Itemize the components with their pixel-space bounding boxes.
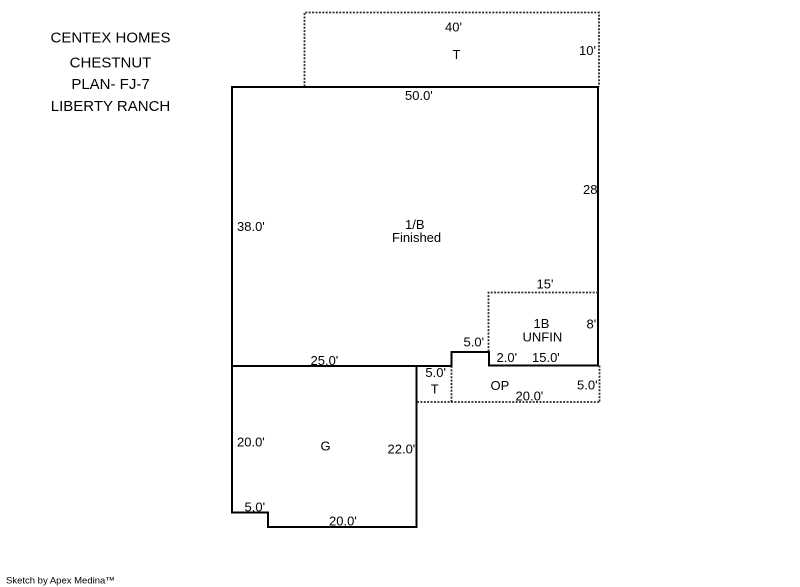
svg-text:CHESTNUT: CHESTNUT xyxy=(70,55,152,72)
svg-text:8': 8' xyxy=(587,317,597,332)
svg-text:5.0': 5.0' xyxy=(577,378,598,393)
svg-text:5.0': 5.0' xyxy=(464,335,485,350)
svg-text:28: 28 xyxy=(583,182,597,197)
svg-text:25.0': 25.0' xyxy=(311,353,339,368)
svg-text:10': 10' xyxy=(579,43,596,58)
svg-text:T: T xyxy=(431,382,439,397)
svg-text:OP: OP xyxy=(491,378,510,393)
svg-text:T: T xyxy=(453,47,461,62)
svg-text:50.0': 50.0' xyxy=(405,88,433,103)
svg-text:40': 40' xyxy=(445,20,462,35)
svg-text:CENTEX HOMES: CENTEX HOMES xyxy=(50,30,170,47)
svg-text:2.0': 2.0' xyxy=(497,350,518,365)
svg-text:22.0': 22.0' xyxy=(388,442,416,457)
svg-text:5.0': 5.0' xyxy=(245,500,266,515)
svg-text:LIBERTY RANCH: LIBERTY RANCH xyxy=(51,98,170,115)
svg-text:20.0': 20.0' xyxy=(237,434,265,449)
svg-text:PLAN- FJ-7: PLAN- FJ-7 xyxy=(71,76,149,93)
svg-text:5.0': 5.0' xyxy=(425,365,446,380)
svg-text:G: G xyxy=(321,439,331,454)
svg-text:15': 15' xyxy=(537,276,554,291)
svg-text:Sketch by Apex Medina™: Sketch by Apex Medina™ xyxy=(6,576,115,587)
svg-text:20.0': 20.0' xyxy=(329,513,357,528)
svg-text:Finished: Finished xyxy=(392,230,441,245)
svg-text:UNFIN: UNFIN xyxy=(523,330,563,345)
svg-text:38.0': 38.0' xyxy=(237,219,265,234)
svg-text:15.0': 15.0' xyxy=(532,350,560,365)
svg-text:20.0': 20.0' xyxy=(516,389,544,404)
